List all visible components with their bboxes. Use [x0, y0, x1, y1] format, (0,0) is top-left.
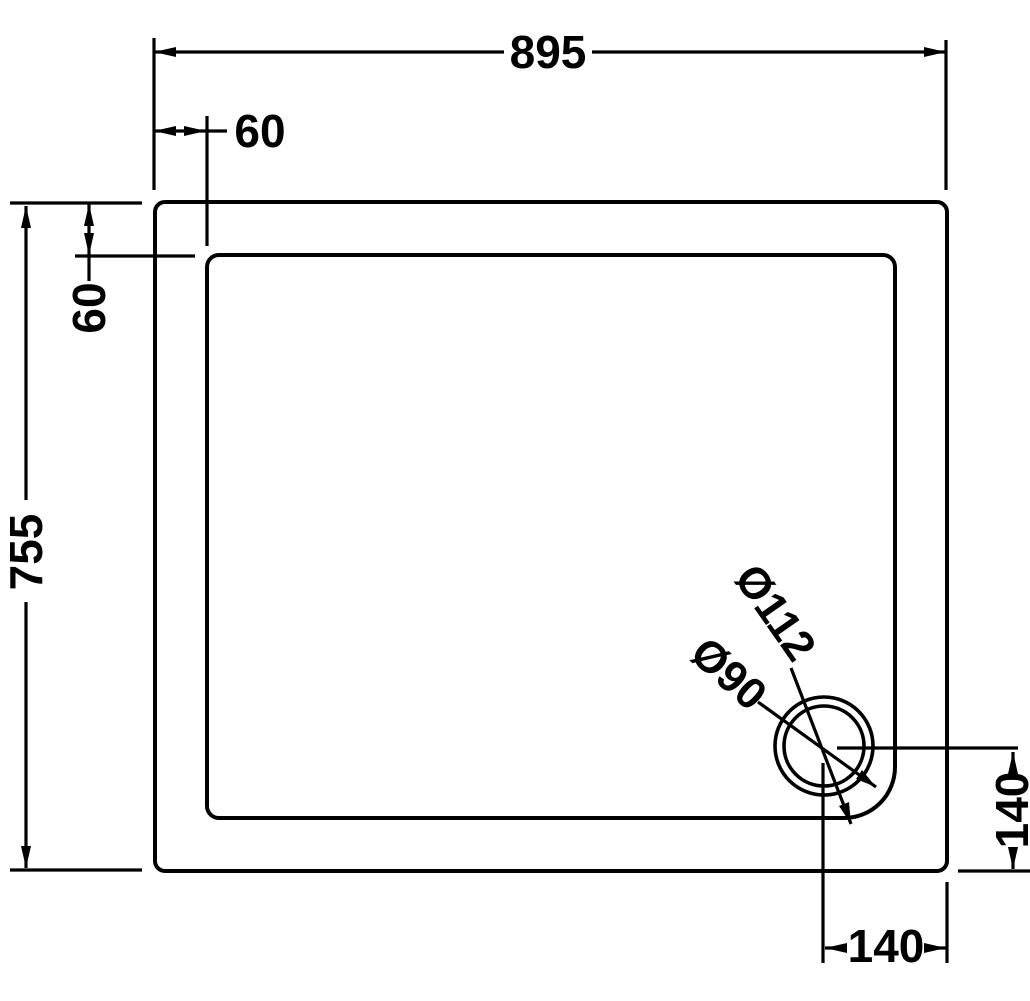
- dim-top-inset-label: 60: [234, 105, 285, 157]
- dim-left-inset-label: 60: [63, 282, 115, 333]
- arrowhead-left: [154, 47, 176, 57]
- dim-top-inset: 60: [154, 105, 286, 246]
- arrowhead-down: [1008, 847, 1018, 869]
- technical-drawing-canvas: 895 60 60 755: [0, 0, 1030, 1001]
- arrowhead-left: [154, 126, 176, 136]
- arrowhead-left: [825, 943, 847, 953]
- arrowhead-up: [84, 204, 94, 226]
- tray-outline: [155, 202, 947, 871]
- dim-waste-offset-right-label: 140: [986, 772, 1030, 849]
- dim-waste-offset-bottom-label: 140: [848, 920, 925, 972]
- arrowhead-down: [21, 846, 31, 868]
- arrowhead-right: [924, 943, 946, 953]
- arrowhead-up: [1008, 752, 1018, 774]
- tray-outer-edge: [155, 202, 947, 871]
- dim-left-inset: 60: [10, 203, 195, 334]
- arrowhead-right: [184, 126, 206, 136]
- dim-overall-depth-label: 755: [0, 514, 52, 591]
- dim-waste-offset-bottom: 140: [825, 882, 947, 972]
- dim-waste-offset-right: 140: [958, 752, 1030, 871]
- arrowhead-up: [21, 206, 31, 228]
- arrowhead: [839, 802, 851, 824]
- tray-inner-edge: [207, 255, 895, 818]
- arrowhead-right: [924, 47, 946, 57]
- dim-overall-width-label: 895: [510, 26, 587, 78]
- arrowhead-down: [84, 233, 94, 255]
